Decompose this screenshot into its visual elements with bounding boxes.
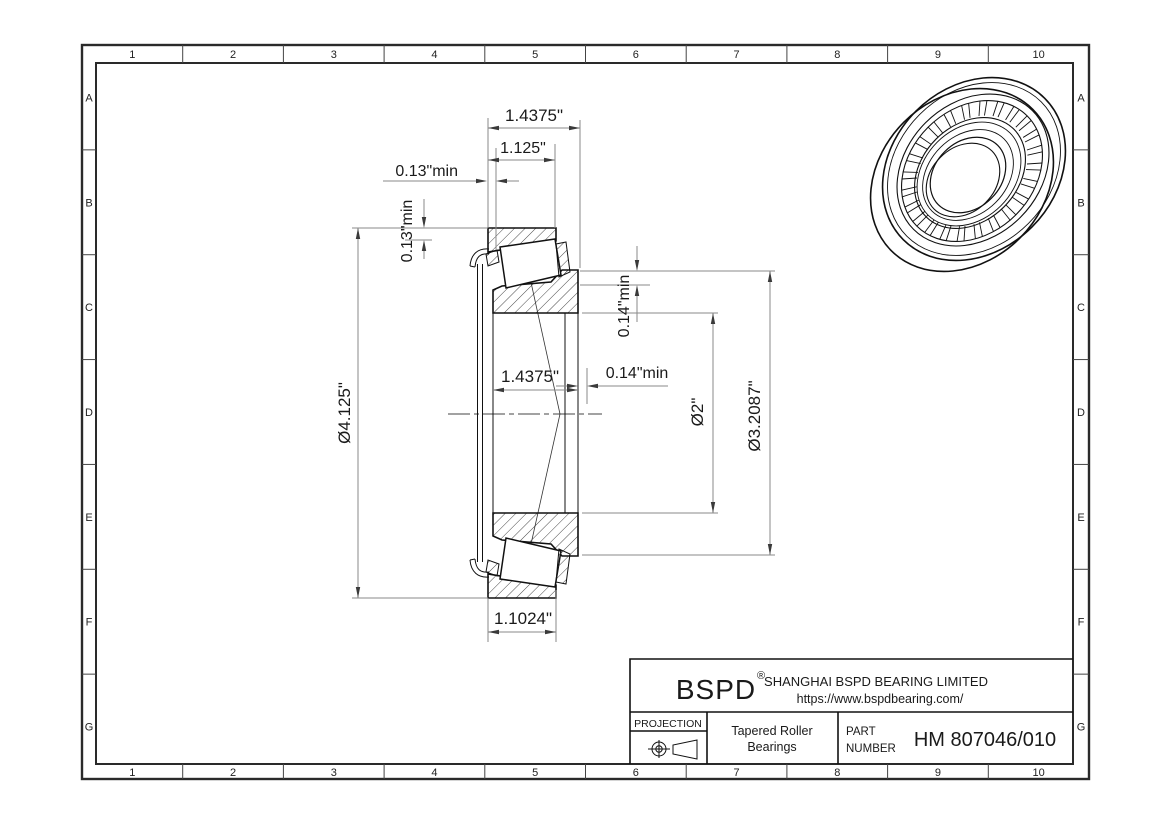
bore-edge <box>915 122 1021 228</box>
grid-column-label-bottom: 4 <box>431 767 437 779</box>
grid-column-label-top: 2 <box>230 49 236 61</box>
grid-row-label-left: C <box>85 302 93 314</box>
dim-front-clearance-v-label: 0.14"min <box>616 275 633 338</box>
dim-cup-width-label: 1.1024" <box>494 609 552 628</box>
dim-outer-diameter-label: Ø4.125" <box>335 382 354 444</box>
grid-row-label-left: E <box>85 512 92 524</box>
grid-column-label-bottom: 9 <box>935 767 941 779</box>
cage-bar-top-right <box>556 242 570 277</box>
grid-column-labels-top: 12345678910 <box>129 49 1044 61</box>
company-website: https://www.bspdbearing.com/ <box>797 692 964 706</box>
grid-column-label-bottom: 3 <box>331 767 337 779</box>
section-view <box>448 228 602 598</box>
dim-back-clearance-v-label: 0.13"min <box>399 200 416 263</box>
company-name: SHANGHAI BSPD BEARING LIMITED <box>764 674 988 689</box>
grid-row-label-right: B <box>1077 197 1084 209</box>
grid-column-label-bottom: 7 <box>733 767 739 779</box>
grid-column-label-top: 6 <box>633 49 639 61</box>
bearing-outer-surface <box>833 51 1090 308</box>
sheet-border <box>82 45 1089 779</box>
grid-row-label-left: F <box>86 617 93 629</box>
part-number-value: HM 807046/010 <box>914 729 1056 751</box>
projection-label: PROJECTION <box>634 718 702 730</box>
dim-shoulder-diameter-label: Ø3.2087" <box>745 380 764 451</box>
cad-drawing-canvas: 12345678910 12345678910 ABCDEFG ABCDEFG <box>0 0 1169 826</box>
title-block: BSPD ® SHANGHAI BSPD BEARING LIMITED htt… <box>630 659 1073 764</box>
grid-column-label-bottom: 8 <box>834 767 840 779</box>
part-label-line1: PART <box>846 726 876 738</box>
grid-row-label-right: A <box>1077 92 1085 104</box>
grid-column-label-top: 4 <box>431 49 437 61</box>
drawing-sheet: 12345678910 12345678910 ABCDEFG ABCDEFG <box>0 0 1169 826</box>
grid-row-label-right: C <box>1077 302 1085 314</box>
cup-chamfer-edge <box>852 47 1095 290</box>
grid-column-label-top: 3 <box>331 49 337 61</box>
grid-row-label-left: G <box>85 722 94 734</box>
grid-column-label-bottom: 10 <box>1033 767 1045 779</box>
grid-column-label-bottom: 6 <box>633 767 639 779</box>
cage-profile <box>470 249 489 577</box>
grid-column-label-bottom: 1 <box>129 767 135 779</box>
grid-row-label-left: D <box>85 407 93 419</box>
grid-column-labels-bottom: 12345678910 <box>129 767 1044 779</box>
grid-column-label-top: 5 <box>532 49 538 61</box>
third-angle-projection-icon <box>648 740 697 759</box>
cage-bar-bottom-right <box>556 549 570 584</box>
grid-column-label-top: 7 <box>733 49 739 61</box>
grid-row-labels-left: ABCDEFG <box>85 92 94 733</box>
grid-row-label-right: F <box>1078 617 1085 629</box>
grid-column-label-top: 1 <box>129 49 135 61</box>
bearing-face-outline <box>845 40 1102 297</box>
grid-row-label-right: G <box>1077 722 1086 734</box>
product-type-line2: Bearings <box>747 740 796 754</box>
dim-cone-width-label: 1.4375" <box>501 367 559 386</box>
grid-row-label-right: D <box>1077 407 1085 419</box>
outer-border <box>82 45 1089 779</box>
grid-row-label-left: A <box>85 92 93 104</box>
dim-back-clearance-h-label: 0.13"min <box>395 163 458 180</box>
grid-column-label-top: 10 <box>1033 49 1045 61</box>
grid-row-labels-right: ABCDEFG <box>1077 92 1086 733</box>
cup-inner-edge <box>866 63 1080 277</box>
isometric-view <box>833 40 1102 308</box>
dim-front-clearance-h-label: 0.14"min <box>606 365 669 382</box>
grid-column-label-bottom: 2 <box>230 767 236 779</box>
dim-bore-diameter-label: Ø2" <box>688 398 707 427</box>
product-type-line1: Tapered Roller <box>731 724 812 738</box>
grid-column-label-top: 9 <box>935 49 941 61</box>
company-logo: BSPD <box>676 674 756 705</box>
dim-overall-width-label: 1.4375" <box>505 106 563 125</box>
grid-tick-marks <box>82 45 1089 779</box>
grid-column-label-bottom: 5 <box>532 767 538 779</box>
grid-row-label-right: E <box>1077 512 1084 524</box>
part-label-line2: NUMBER <box>846 743 896 755</box>
grid-row-label-left: B <box>85 197 92 209</box>
grid-column-label-top: 8 <box>834 49 840 61</box>
dim-cup-standout-label: 1.125" <box>500 140 546 157</box>
